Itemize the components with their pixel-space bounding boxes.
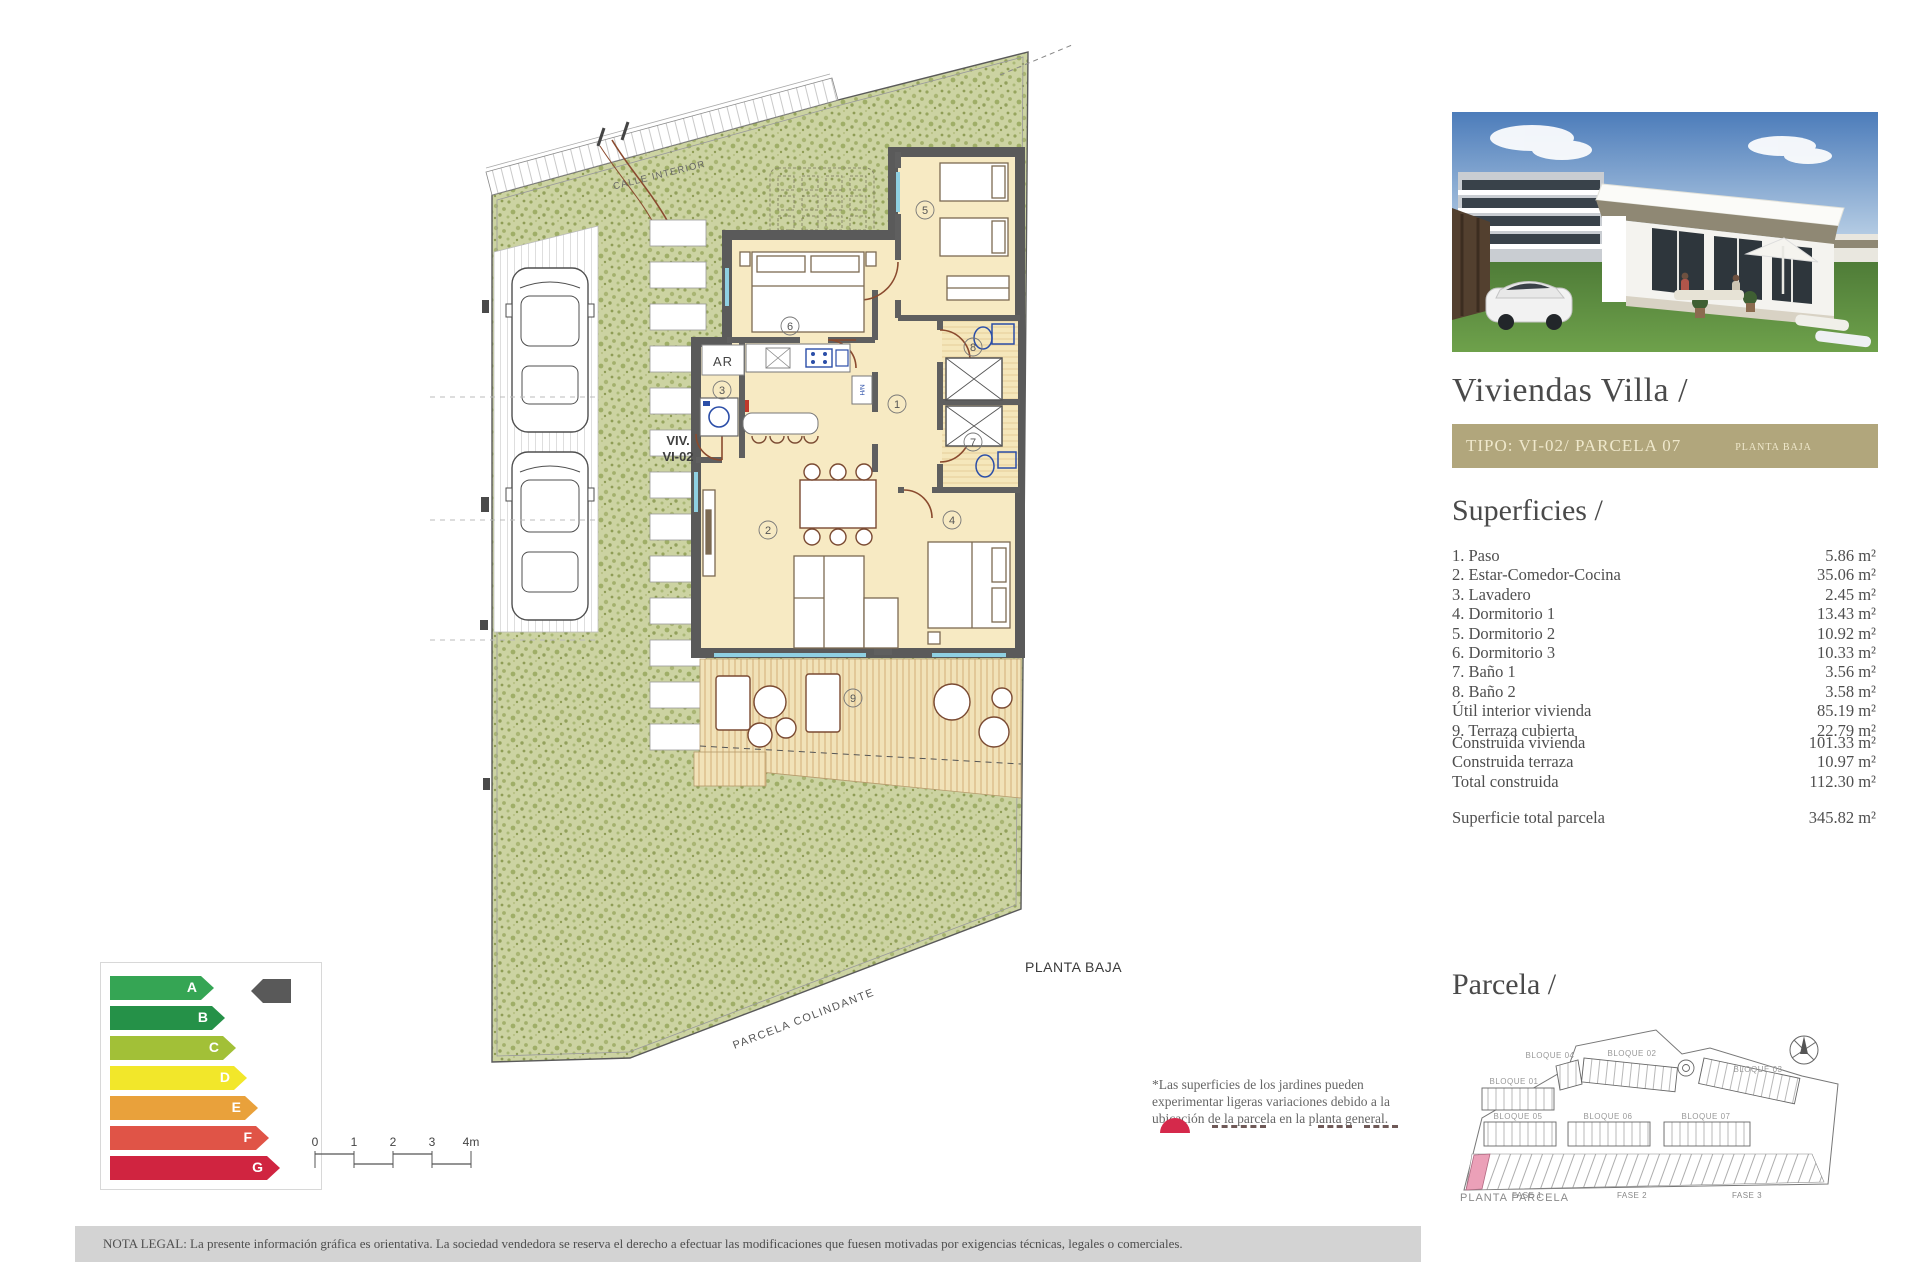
bed-double <box>740 252 876 332</box>
svg-text:3: 3 <box>719 385 725 397</box>
svg-text:BLOQUE 07: BLOQUE 07 <box>1682 1112 1731 1121</box>
energy-grade-row: F <box>110 1126 280 1156</box>
site-plan: BLOQUE 04 BLOQUE 02 BLOQUE 01 BLOQUE 03 … <box>1452 1008 1856 1198</box>
room-label: 7. Baño 1 <box>1452 662 1516 681</box>
svg-text:BLOQUE 03: BLOQUE 03 <box>1734 1065 1783 1074</box>
floor-label: PLANTA BAJA <box>1025 959 1122 975</box>
svg-text:FASE 2: FASE 2 <box>1617 1191 1647 1198</box>
built-label: Total construida <box>1452 772 1559 791</box>
svg-text:0: 0 <box>312 1135 319 1149</box>
room-label: 2. Estar-Comedor-Cocina <box>1452 565 1621 584</box>
room-area: 85.19 m² <box>1817 701 1876 720</box>
energy-grade-row: D <box>110 1066 280 1096</box>
svg-text:4m: 4m <box>463 1135 480 1149</box>
unit-label: VIV. <box>666 433 689 448</box>
note-legend <box>1160 1116 1410 1136</box>
energy-grade-letter: A <box>187 979 197 995</box>
energy-grade-letter: C <box>209 1039 219 1055</box>
built-row: Construida vivienda 101.33 m² <box>1452 733 1876 752</box>
energy-grade-arrow: C <box>110 1036 236 1060</box>
energy-grade-arrow: B <box>110 1006 225 1030</box>
energy-grade-letter: G <box>252 1159 263 1175</box>
superficie-row: 5. Dormitorio 2 10.92 m² <box>1452 624 1876 643</box>
room-area: 10.33 m² <box>1817 643 1876 662</box>
svg-text:8: 8 <box>970 342 976 354</box>
legal-note-bar: NOTA LEGAL: La presente información gráf… <box>75 1226 1421 1262</box>
energy-grade-arrow: A <box>110 976 214 1000</box>
svg-text:1: 1 <box>894 399 900 411</box>
page-title: Viviendas Villa / <box>1452 372 1878 410</box>
svg-text:2: 2 <box>765 525 771 537</box>
svg-text:4: 4 <box>949 515 955 527</box>
room-area: 5.86 m² <box>1825 546 1876 565</box>
energy-grade-letter: E <box>232 1099 241 1115</box>
built-row: Construida terraza 10.97 m² <box>1452 752 1876 771</box>
legend-dot <box>1160 1118 1190 1133</box>
pergola <box>1452 208 1490 320</box>
scale-bar: 0 1 2 3 4m <box>305 1132 485 1178</box>
room-area: 3.56 m² <box>1825 662 1876 681</box>
room-area: 2.45 m² <box>1825 585 1876 604</box>
fridge-label: N/H <box>858 384 865 396</box>
superficie-row: 2. Estar-Comedor-Cocina 35.06 m² <box>1452 565 1876 584</box>
svg-text:BLOQUE 06: BLOQUE 06 <box>1584 1112 1633 1121</box>
room-label: 6. Dormitorio 3 <box>1452 643 1555 662</box>
legend-dashes <box>1318 1125 1352 1128</box>
built-label: Construida terraza <box>1452 752 1573 771</box>
compass-icon <box>1790 1036 1818 1064</box>
energy-grade-row: C <box>110 1036 280 1066</box>
room-label: 3. Lavadero <box>1452 585 1531 604</box>
terrace <box>694 659 1021 798</box>
ar-label: AR <box>713 354 733 369</box>
room-area: 13.43 m² <box>1817 604 1876 623</box>
svg-text:BLOQUE 01: BLOQUE 01 <box>1490 1077 1539 1086</box>
svg-text:5: 5 <box>922 205 928 217</box>
svg-text:3: 3 <box>429 1135 436 1149</box>
svg-text:BLOQUE 04: BLOQUE 04 <box>1526 1051 1575 1060</box>
energy-grade-arrow: E <box>110 1096 258 1120</box>
villa-render-photo <box>1452 112 1878 352</box>
svg-text:BLOQUE 05: BLOQUE 05 <box>1494 1112 1543 1121</box>
energy-grade-letter: F <box>243 1129 252 1145</box>
built-label: Construida vivienda <box>1452 733 1585 752</box>
room-area: 35.06 m² <box>1817 565 1876 584</box>
svg-text:6: 6 <box>787 321 793 333</box>
room-area: 3.58 m² <box>1825 682 1876 701</box>
energy-grade-row: E <box>110 1096 280 1126</box>
built-areas-table: Construida vivienda 101.33 m² Construida… <box>1452 733 1876 791</box>
energy-rating-chart: A B C D <box>100 962 322 1190</box>
room-label: Útil interior vivienda <box>1452 701 1591 720</box>
energy-grade-arrow: D <box>110 1066 247 1090</box>
energy-grade-arrow: G <box>110 1156 280 1180</box>
legend-dashes <box>1364 1125 1398 1128</box>
dining-set <box>800 464 876 545</box>
unit-label: VI-02 <box>662 449 693 464</box>
scale-tick-labels: 0 1 2 3 4m <box>312 1135 480 1149</box>
car-icon <box>506 268 594 432</box>
svg-text:7: 7 <box>970 437 976 449</box>
built-area: 101.33 m² <box>1809 733 1876 752</box>
superficie-row: Útil interior vivienda 85.19 m² <box>1452 701 1876 720</box>
energy-grade-row: B <box>110 1006 280 1036</box>
room-label: 8. Baño 2 <box>1452 682 1516 701</box>
energy-grade-letter: D <box>220 1069 230 1085</box>
type-bar: TIPO: VI-02/ PARCELA 07 PLANTA BAJA <box>1452 424 1878 468</box>
built-row: Total construida 112.30 m² <box>1452 772 1876 791</box>
beds-single <box>940 163 1009 300</box>
room-label: 1. Paso <box>1452 546 1500 565</box>
superficie-row: 4. Dormitorio 1 13.43 m² <box>1452 604 1876 623</box>
built-area: 112.30 m² <box>1809 772 1876 791</box>
energy-rows: A B C D <box>110 976 280 1186</box>
room-area: 10.92 m² <box>1817 624 1876 643</box>
type-label: TIPO: VI-02/ PARCELA 07 <box>1466 436 1681 456</box>
energy-grade-row: G <box>110 1156 280 1186</box>
svg-text:9: 9 <box>850 693 856 705</box>
energy-grade-arrow: F <box>110 1126 269 1150</box>
legend-dashes <box>1212 1125 1266 1128</box>
superficie-row: 1. Paso 5.86 m² <box>1452 546 1876 565</box>
svg-text:1: 1 <box>351 1135 358 1149</box>
superficie-row: 6. Dormitorio 3 10.33 m² <box>1452 643 1876 662</box>
brochure-page: CALLE INTERIOR <box>0 0 1920 1280</box>
superficie-row: 7. Baño 1 3.56 m² <box>1452 662 1876 681</box>
floor-label: PLANTA BAJA <box>1735 442 1812 453</box>
plot-total-row: Superficie total parcela 345.82 m² <box>1452 808 1876 828</box>
plot-total-area: 345.82 m² <box>1809 808 1876 828</box>
legal-note-text: NOTA LEGAL: La presente información gráf… <box>103 1236 1183 1252</box>
svg-text:2: 2 <box>390 1135 397 1149</box>
superficies-table: 1. Paso 5.86 m² 2. Estar-Comedor-Cocina … <box>1452 546 1876 740</box>
room-label: 5. Dormitorio 2 <box>1452 624 1555 643</box>
parcela-title: Parcela / <box>1452 968 1556 1002</box>
floor-plan: CALLE INTERIOR <box>425 15 1135 1175</box>
plot-total-label: Superficie total parcela <box>1452 808 1605 828</box>
superficies-title: Superficies / <box>1452 494 1603 528</box>
svg-text:BLOQUE 02: BLOQUE 02 <box>1608 1049 1657 1058</box>
superficie-row: 3. Lavadero 2.45 m² <box>1452 585 1876 604</box>
svg-text:FASE 3: FASE 3 <box>1732 1191 1762 1198</box>
site-plan-caption: PLANTA PARCELA <box>1460 1192 1569 1204</box>
energy-grade-letter: B <box>198 1009 208 1025</box>
superficie-row: 8. Baño 2 3.58 m² <box>1452 682 1876 701</box>
car-icon <box>506 452 594 620</box>
room-label: 4. Dormitorio 1 <box>1452 604 1555 623</box>
built-area: 10.97 m² <box>1817 752 1876 771</box>
